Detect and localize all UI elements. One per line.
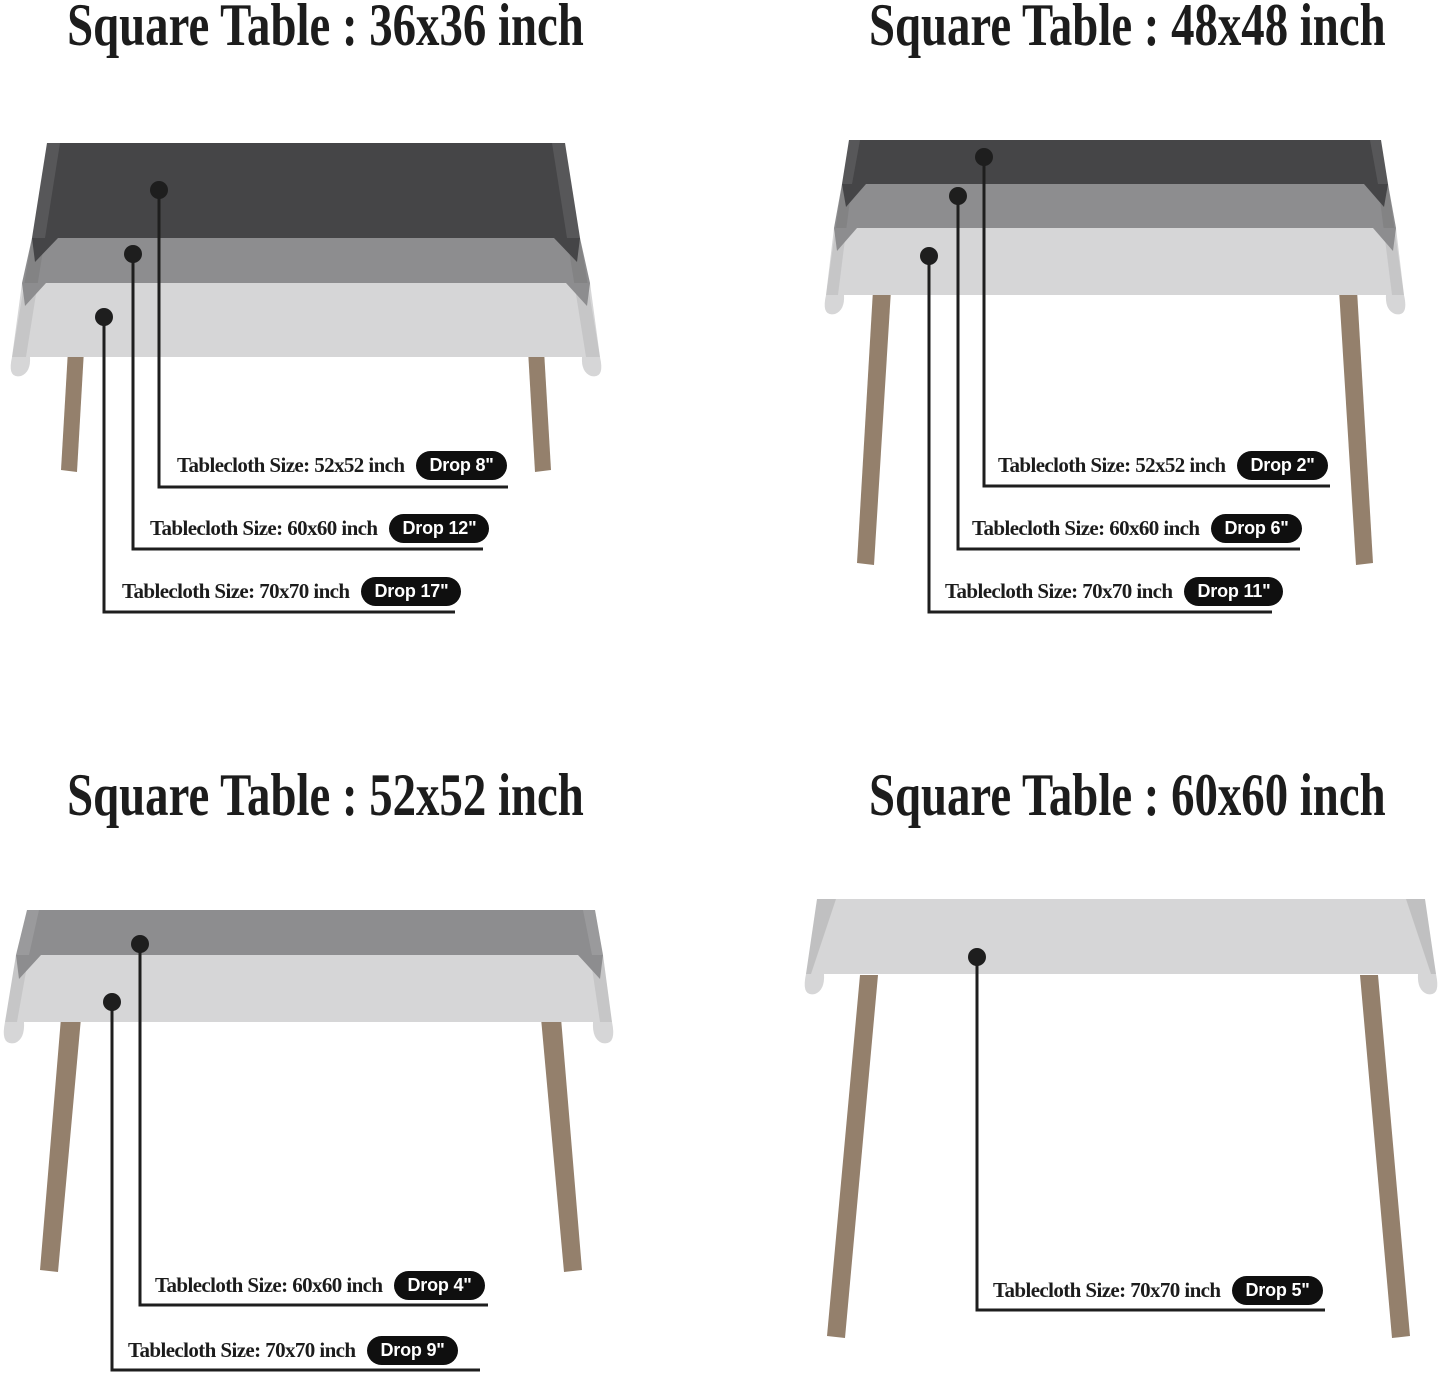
drop-badge: Drop 2" (1237, 451, 1327, 480)
tablecloth-size-label: Tablecloth Size: 70x70 inch (122, 579, 349, 604)
drop-badge: Drop 17" (361, 577, 461, 606)
tablecloth-layer-70x70 (5, 955, 612, 1022)
drop-badge: Drop 12" (389, 514, 489, 543)
cloth-drape-corner-left (825, 295, 844, 314)
table-leg-right (541, 1018, 582, 1272)
cloth-drape-corner-right (582, 357, 601, 376)
callout-row: Tablecloth Size: 60x60 inch Drop 12" (150, 511, 489, 545)
drop-badge: Drop 9" (367, 1336, 457, 1365)
tablecloth-layer-52x52 (842, 140, 1388, 184)
callout-row: Tablecloth Size: 70x70 inch Drop 5" (993, 1273, 1323, 1307)
callout-row: Tablecloth Size: 52x52 inch Drop 2" (998, 448, 1328, 482)
callout-row: Tablecloth Size: 70x70 inch Drop 17" (122, 574, 461, 608)
callout-row: Tablecloth Size: 60x60 inch Drop 4" (155, 1268, 485, 1302)
callout-dot (124, 245, 142, 263)
drop-badge: Drop 11" (1184, 577, 1283, 606)
drop-badge: Drop 5" (1232, 1276, 1322, 1305)
table-leg-left (857, 290, 891, 565)
table-leg-left (827, 975, 878, 1338)
tablecloth-size-label: Tablecloth Size: 52x52 inch (998, 453, 1225, 478)
cloth-drape-corner-left (805, 974, 824, 994)
callout-line (977, 957, 1325, 1310)
callout-line (929, 256, 1272, 612)
cloth-drape-corner-right (593, 1022, 613, 1043)
callout-dot (975, 148, 993, 166)
tables-illustration (0, 0, 1445, 1374)
section-title-48x48: Square Table : 48x48 inch (869, 0, 1372, 55)
tablecloth-layer-52x52 (32, 143, 580, 238)
callout-dot (95, 308, 113, 326)
cloth-drape-corner-right (1418, 974, 1437, 994)
tablecloth-layer-60x60 (834, 184, 1396, 228)
callout-row: Tablecloth Size: 60x60 inch Drop 6" (972, 511, 1302, 545)
table-leg-right (1360, 975, 1410, 1338)
drop-badge: Drop 4" (394, 1271, 484, 1300)
cloth-drape-corner-left (4, 1022, 24, 1043)
tablecloth-size-label: Tablecloth Size: 60x60 inch (155, 1273, 382, 1298)
tablecloth-size-label: Tablecloth Size: 52x52 inch (177, 453, 404, 478)
callout-dot (150, 181, 168, 199)
tablecloth-size-label: Tablecloth Size: 60x60 inch (150, 516, 377, 541)
table-leg-right (528, 350, 551, 472)
tablecloth-size-label: Tablecloth Size: 70x70 inch (128, 1338, 355, 1363)
callout-row: Tablecloth Size: 70x70 inch Drop 11" (945, 574, 1283, 608)
section-title-52x52: Square Table : 52x52 inch (67, 765, 543, 825)
cloth-drape-corner-right (1386, 295, 1405, 314)
callout-dot (920, 247, 938, 265)
tablecloth-size-label: Tablecloth Size: 60x60 inch (972, 516, 1199, 541)
section-title-36x36: Square Table : 36x36 inch (67, 0, 543, 55)
tablecloth-size-label: Tablecloth Size: 70x70 inch (945, 579, 1172, 604)
callout-dot (968, 948, 986, 966)
cloth-drape-corner-left (11, 357, 30, 376)
section-title-60x60: Square Table : 60x60 inch (869, 765, 1372, 825)
tablecloth-layer-60x60 (16, 910, 603, 955)
callout-line (112, 1002, 480, 1370)
table-leg-left (61, 350, 84, 472)
tablecloth-layer-70x70 (826, 228, 1404, 295)
table-leg-right (1339, 290, 1373, 565)
callout-dot (131, 935, 149, 953)
table-leg-left (40, 1018, 81, 1272)
callout-row: Tablecloth Size: 70x70 inch Drop 9" (128, 1333, 458, 1367)
callout-dot (103, 993, 121, 1011)
drop-badge: Drop 6" (1211, 514, 1301, 543)
callout-row: Tablecloth Size: 52x52 inch Drop 8" (177, 448, 507, 482)
tablecloth-size-label: Tablecloth Size: 70x70 inch (993, 1278, 1220, 1303)
tablecloth-layer-70x70 (806, 899, 1436, 974)
callout-dot (949, 187, 967, 205)
tablecloth-size-infographic: Square Table : 36x36 inch Square Table :… (0, 0, 1445, 1374)
tablecloth-layer-60x60 (22, 238, 590, 283)
drop-badge: Drop 8" (416, 451, 506, 480)
